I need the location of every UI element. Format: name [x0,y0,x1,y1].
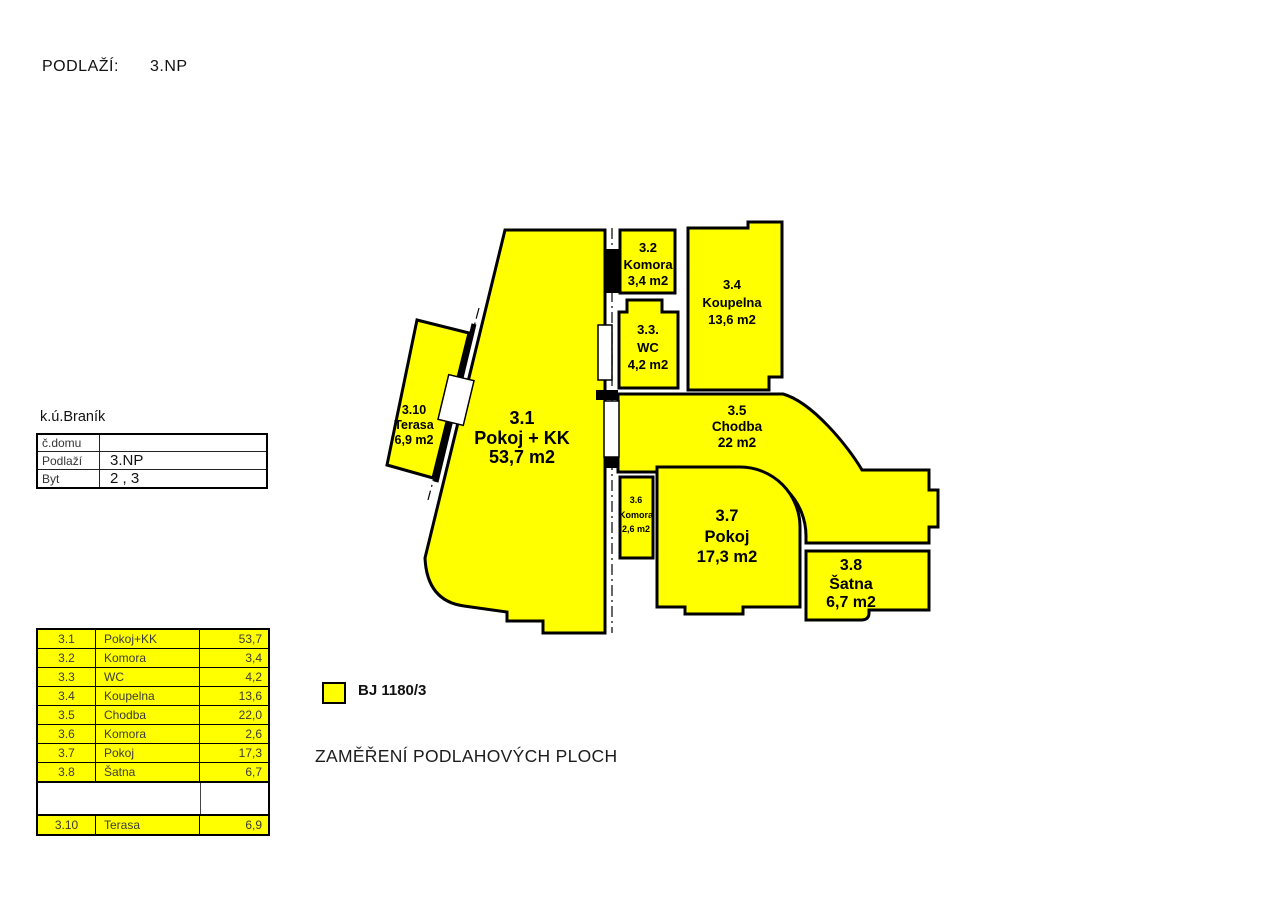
room-name: Chodba [712,419,763,434]
caption: ZAMĚŘENÍ PODLAHOVÝCH PLOCH [315,746,617,767]
room-name: Koupelna [702,295,762,310]
wall-stub [606,457,619,468]
room-area: 4,2 m2 [628,357,668,372]
page: PODLAŽÍ: 3.NP k.ú.Braník č.domu Podlaží … [0,0,1280,905]
room-id: 3.3. [637,322,659,337]
cell-room-no: 3.8 [38,763,96,781]
table-row: 3.4 Koupelna 13,6 [38,686,268,705]
table-gap-row [38,781,268,814]
cell-room-area: 2,6 [200,725,268,743]
room-area: 3,4 m2 [628,273,668,288]
cell-room-area: 6,9 [200,816,268,834]
room-id: 3.2 [639,240,657,255]
cell-room-name: Terasa [96,816,200,834]
room-id: 3.5 [728,403,747,418]
cell-room-name: Koupelna [96,687,200,705]
room-id: 3.1 [509,408,534,428]
room-id: 3.7 [716,507,739,525]
cell-room-no: 3.3 [38,668,96,686]
cell-room-name: Pokoj+KK [96,630,200,648]
cell-room-no: 3.2 [38,649,96,667]
room-area: 2,6 m2 [622,524,650,534]
table-row: 3.8 Šatna 6,7 [38,762,268,781]
cell-room-no: 3.4 [38,687,96,705]
table-row: 3.3 WC 4,2 [38,667,268,686]
cell-room-no: 3.1 [38,630,96,648]
cell-room-name: Šatna [96,763,200,781]
cell-room-area: 4,2 [200,668,268,686]
cell-room-area: 17,3 [200,744,268,762]
cell-room-area: 6,7 [200,763,268,781]
gap-cell [200,783,268,814]
cell-room-area: 3,4 [200,649,268,667]
gap-cell [38,783,200,814]
room-id: 3.8 [840,557,862,574]
cell-room-name: WC [96,668,200,686]
cell-room-name: Pokoj [96,744,200,762]
cell-room-area: 53,7 [200,630,268,648]
table-row: 3.6 Komora 2,6 [38,724,268,743]
legend-label: BJ 1180/3 [358,682,426,699]
room-area: 6,9 m2 [395,433,434,447]
room-id: 3.10 [402,403,426,417]
cell-room-name: Komora [96,649,200,667]
table-row: 3.5 Chodba 22,0 [38,705,268,724]
cell-room-area: 13,6 [200,687,268,705]
door-opening [598,325,612,380]
cell-room-no: 3.7 [38,744,96,762]
room-area: 17,3 m2 [697,548,758,566]
room-area: 22 m2 [718,435,756,450]
legend-swatch [322,682,346,704]
table-row-terrace: 3.10 Terasa 6,9 [38,814,268,834]
room-area: 13,6 m2 [708,312,756,327]
room-name: Komora [623,257,673,272]
door-opening [604,401,619,457]
room-name: Pokoj + KK [474,428,570,448]
area-table: 3.1 Pokoj+KK 53,7 3.2 Komora 3,4 3.3 WC … [36,628,270,836]
room-area: 53,7 m2 [489,447,555,467]
room-name: Komora [619,510,654,520]
cell-room-no: 3.10 [38,816,96,834]
room-name: Pokoj [705,528,750,546]
room-name: Terasa [394,418,434,432]
cell-room-no: 3.5 [38,706,96,724]
table-row: 3.2 Komora 3,4 [38,648,268,667]
room-name: Šatna [829,574,873,593]
room-name: WC [637,340,659,355]
room-id: 3.4 [723,277,742,292]
cell-room-no: 3.6 [38,725,96,743]
room-area: 6,7 m2 [826,594,876,611]
cell-room-name: Chodba [96,706,200,724]
room-id: 3.6 [630,495,643,505]
wall-stub [606,249,619,293]
table-row: 3.1 Pokoj+KK 53,7 [38,630,268,648]
table-row: 3.7 Pokoj 17,3 [38,743,268,762]
cell-room-area: 22,0 [200,706,268,724]
wall-stub [596,390,618,400]
cell-room-name: Komora [96,725,200,743]
